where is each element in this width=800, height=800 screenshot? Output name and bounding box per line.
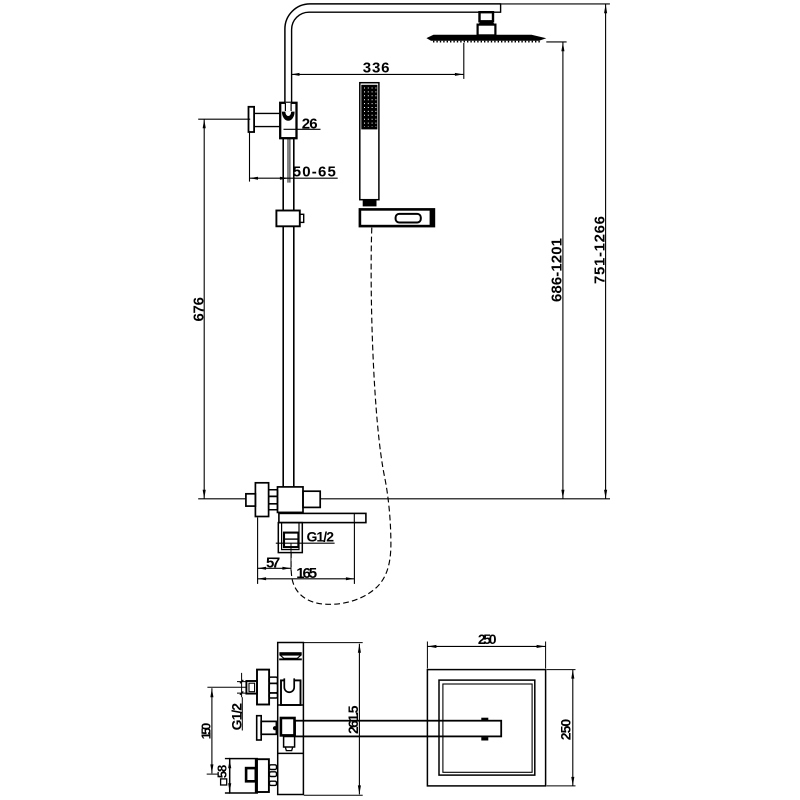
svg-text:676: 676 xyxy=(190,297,207,322)
svg-text:250: 250 xyxy=(558,719,574,741)
svg-text:261.5: 261.5 xyxy=(345,705,361,734)
svg-text:26: 26 xyxy=(302,115,318,132)
svg-text:58: 58 xyxy=(214,765,229,779)
svg-text:165: 165 xyxy=(296,565,317,582)
svg-text:150: 150 xyxy=(199,723,214,740)
svg-text:336: 336 xyxy=(363,60,390,77)
svg-text:50-65: 50-65 xyxy=(293,164,336,181)
svg-text:751-1266: 751-1266 xyxy=(591,216,608,284)
svg-text:250: 250 xyxy=(478,631,497,647)
svg-text:G1/2: G1/2 xyxy=(307,528,335,544)
svg-text:57: 57 xyxy=(266,555,280,572)
svg-text:686-1201: 686-1201 xyxy=(549,238,566,302)
svg-text:G1/2: G1/2 xyxy=(228,703,244,731)
